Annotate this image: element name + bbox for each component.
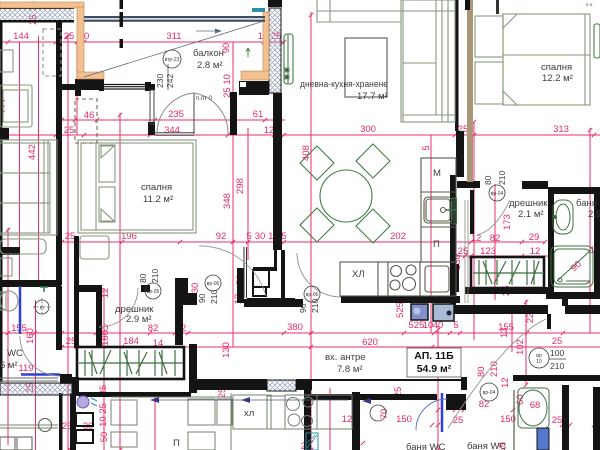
svg-text:5: 5	[421, 145, 432, 150]
svg-text:2.1 м²: 2.1 м²	[518, 209, 544, 220]
svg-text:298: 298	[235, 178, 246, 194]
svg-text:311: 311	[166, 31, 181, 42]
svg-text:313: 313	[553, 124, 569, 135]
svg-text:баня: баня	[576, 198, 597, 209]
svg-text:380: 380	[287, 322, 303, 333]
svg-text:2.8 м²: 2.8 м²	[197, 60, 223, 71]
svg-text:46: 46	[84, 110, 95, 121]
svg-text:2.9 м²: 2.9 м²	[126, 314, 152, 325]
svg-text:620: 620	[362, 337, 378, 348]
svg-text:25: 25	[552, 336, 563, 347]
svg-text:13: 13	[499, 327, 510, 338]
svg-text:вр-04: вр-04	[483, 390, 496, 396]
svg-text:25: 25	[552, 415, 563, 426]
svg-text:242: 242	[165, 74, 175, 88]
svg-text:WC: WC	[7, 348, 23, 359]
svg-text:173: 173	[502, 214, 513, 230]
svg-text:12.2 м²: 12.2 м²	[542, 73, 573, 84]
svg-text:дневна-кухня-хранене: дневна-кухня-хранене	[300, 79, 388, 90]
svg-text:25: 25	[64, 31, 75, 42]
svg-text:7.8 м²: 7.8 м²	[337, 364, 363, 375]
svg-text:235: 235	[168, 109, 184, 120]
svg-text:вр-04: вр-04	[491, 191, 504, 197]
svg-text:хл: хл	[244, 408, 254, 419]
svg-text:210: 210	[150, 269, 160, 283]
svg-text:210: 210	[310, 299, 320, 313]
svg-text:25: 25	[453, 415, 464, 426]
svg-text:АП. 11Б: АП. 11Б	[414, 350, 454, 362]
svg-text:80: 80	[483, 175, 493, 185]
svg-text:210: 210	[209, 290, 219, 304]
svg-text:61: 61	[253, 109, 264, 120]
svg-text:вр-05: вр-05	[147, 289, 160, 295]
svg-text:10: 10	[536, 359, 542, 365]
svg-text:442: 442	[27, 144, 38, 160]
svg-text:2.9: 2.9	[588, 209, 600, 220]
svg-text:30: 30	[190, 283, 201, 294]
svg-text:ХЛ: ХЛ	[352, 269, 365, 280]
svg-text:123: 123	[480, 246, 496, 257]
svg-text:вр-06: вр-06	[306, 292, 319, 298]
svg-text:80: 80	[138, 273, 148, 283]
svg-text:230: 230	[155, 74, 165, 88]
svg-text:80: 80	[476, 366, 487, 377]
svg-text:5: 5	[246, 231, 251, 242]
svg-text:вр-06: вр-06	[207, 281, 220, 287]
svg-text:спалня: спалня	[141, 182, 172, 193]
svg-text:10: 10	[423, 320, 434, 331]
svg-text:348: 348	[222, 193, 233, 209]
svg-text:184: 184	[123, 336, 139, 347]
svg-text:П: П	[433, 239, 440, 250]
svg-text:12: 12	[342, 414, 353, 425]
svg-text:150: 150	[396, 414, 412, 425]
svg-text:балкон: балкон	[193, 48, 224, 59]
svg-text:525: 525	[395, 302, 406, 318]
svg-text:90: 90	[197, 293, 207, 303]
svg-text:54.9 м²: 54.9 м²	[417, 363, 452, 375]
svg-text:210: 210	[497, 171, 507, 185]
svg-text:П: П	[173, 438, 180, 449]
svg-text:160: 160	[25, 328, 36, 344]
svg-text:30: 30	[255, 231, 266, 242]
svg-text:344: 344	[164, 125, 180, 136]
svg-text:баня WC: баня WC	[406, 442, 446, 450]
svg-text:5: 5	[281, 231, 286, 242]
svg-text:102: 102	[515, 339, 526, 355]
svg-text:баня WC: баня WC	[467, 441, 507, 450]
svg-text:82: 82	[490, 233, 501, 244]
svg-text:68: 68	[530, 400, 541, 411]
svg-text:210: 210	[550, 361, 564, 371]
svg-text:25: 25	[64, 125, 75, 136]
svg-text:12: 12	[530, 246, 541, 257]
svg-text:п.л.: п.л.	[586, 2, 594, 7]
svg-text:11.2 м²: 11.2 м²	[143, 194, 173, 205]
svg-text:6 м²: 6 м²	[0, 360, 18, 371]
svg-text:50: 50	[99, 432, 110, 443]
svg-text:вх. антре: вх. антре	[325, 352, 366, 363]
svg-text:п.пт 0: п.пт 0	[196, 96, 213, 102]
svg-text:12: 12	[264, 125, 275, 136]
svg-text:90: 90	[298, 303, 308, 313]
svg-text:дрешник: дрешник	[509, 198, 548, 209]
svg-text:29: 29	[529, 232, 540, 243]
svg-text:10 25: 10 25	[98, 403, 109, 427]
svg-text:22: 22	[525, 313, 536, 324]
svg-text:спалня: спалня	[541, 62, 572, 73]
svg-text:12: 12	[500, 377, 511, 388]
svg-text:144: 144	[13, 31, 29, 42]
svg-text:92: 92	[216, 231, 227, 242]
svg-text:100: 100	[550, 348, 564, 358]
svg-text:119: 119	[18, 363, 33, 374]
svg-text:25: 25	[65, 231, 76, 242]
svg-text:202: 202	[390, 231, 406, 242]
svg-text:130: 130	[221, 342, 232, 358]
svg-text:300: 300	[360, 124, 376, 135]
svg-text:17.7 м²: 17.7 м²	[357, 91, 388, 102]
svg-text:М: М	[433, 168, 441, 179]
svg-text:ю: ю	[40, 305, 44, 311]
svg-text:втр-23: втр-23	[165, 57, 180, 63]
